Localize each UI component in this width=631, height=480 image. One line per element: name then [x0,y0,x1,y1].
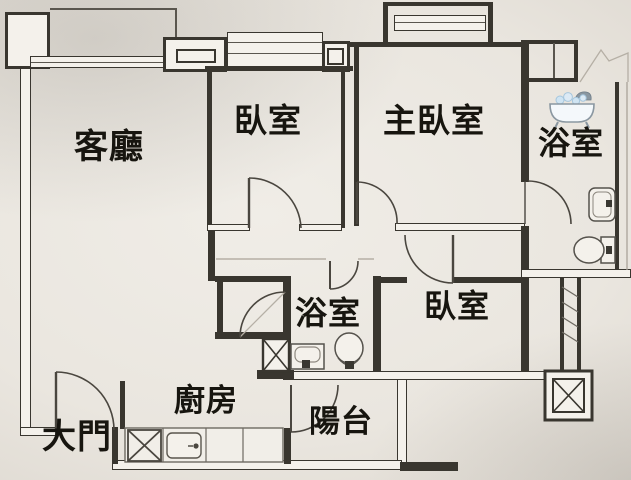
closet-tr-top [523,40,578,44]
wall-bathroom-middle-left [283,276,291,380]
wall-bathroom-top-left [521,40,529,182]
washbasin-top-icon [589,188,615,221]
wall-closet-top [215,276,291,282]
wall-kitchen-stub [120,381,125,429]
closet-tr-bottom [528,78,578,82]
washbasin-middle-icon [291,344,324,369]
wall-bedroom2-top-left [381,277,407,283]
label-entrance: 大門 [42,420,112,454]
window-mullion [228,53,322,54]
window-mullion [228,42,322,43]
window-mullion [31,62,163,63]
label-kitchen: 廚房 [174,386,238,417]
wall-bedroom-bottom-right [299,224,342,231]
window-pillar-a-inner [176,49,216,63]
label-bedroom-right: 臥室 [424,290,490,322]
wall-left-outer [20,68,31,435]
wall-bathroom-top-right [615,82,619,272]
kitchen-xbox [128,430,161,461]
label-bathroom-middle: 浴室 [295,297,361,329]
wall-balcony-right [397,379,407,463]
closet-tr-right [574,40,578,82]
wall-hall-left [208,230,215,281]
ledge-line-v [175,8,177,39]
bay-window-left [383,2,388,47]
bay-window-top [383,2,493,6]
closet-tr-divider [553,43,555,78]
wall-closet-bottom [215,332,287,339]
window-pillar-b-inner [327,48,344,65]
floor-plan: 客廳 臥室 主臥室 浴室 浴室 臥室 廚房 陽台 大門 [0,0,631,480]
shaft-line-b [577,278,581,372]
faint-lines [216,50,628,337]
wall-top-master [350,42,525,47]
closet-door [240,292,285,337]
bay-window-right [488,2,493,47]
wall-top-bedroom [205,66,353,71]
wall-master-left [354,44,359,226]
bedroom2-door [405,235,453,283]
shaft-line-a [560,278,564,372]
wall-bottom-main [112,460,402,470]
wall-middle-long [289,371,547,380]
wall-bedroom-left [207,66,212,230]
bedroom-door [249,178,301,228]
bathroom-middle-door [330,261,358,289]
ledge-line-h [50,8,177,10]
bathroom-top-door [525,181,571,224]
master-bedroom-door [357,182,397,224]
shaft-hatching [562,287,578,342]
toilet-top-icon [574,237,615,263]
toilet-middle-icon [335,333,363,369]
label-balcony: 陽台 [309,407,373,438]
kitchen-sink [167,433,201,458]
elevator-shaft [545,371,592,420]
wall-bedroom-right [341,66,345,228]
wall-master-bottom [395,223,525,231]
window-top-strip [227,32,323,68]
label-master-bedroom: 主臥室 [383,104,485,137]
label-bedroom-top: 臥室 [234,104,302,137]
wall-kitchen-balcony-divider [284,428,291,464]
wall-bedroom2-right [521,226,529,377]
wall-entry-corner [112,427,118,464]
window-living-room [30,56,164,68]
window-mullion [395,22,485,23]
bay-window-glazing [394,15,486,31]
kitchen-counter [125,428,283,462]
label-bathroom-top: 浴室 [538,127,604,159]
wall-bathroom-middle-right [373,276,381,377]
wall-closet-left [217,282,223,338]
wall-bottom-ledge [400,462,458,471]
wall-bathroom-top-bottom [521,269,631,278]
label-living-room: 客廳 [74,130,144,164]
bathtub-icon [550,92,594,128]
wall-bedroom2-top-right [453,277,528,283]
xbox-bottom-bar [257,370,294,379]
